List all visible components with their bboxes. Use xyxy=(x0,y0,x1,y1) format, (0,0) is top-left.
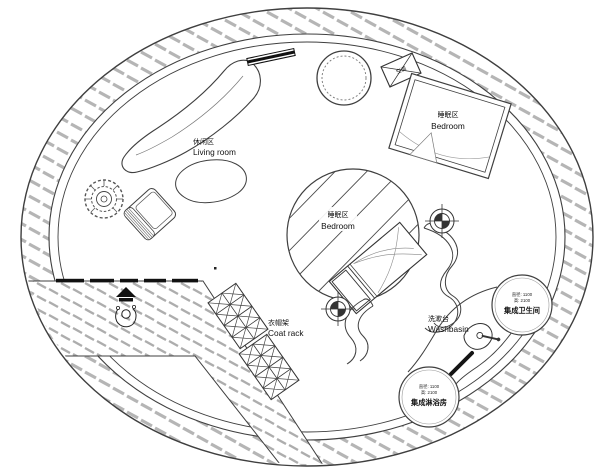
label-washbasin-en: Washbasin xyxy=(428,324,469,334)
floor-plan-svg: 空调 休闲区 Living room 睡眠区 Bedroom xyxy=(0,0,611,473)
plan-dot xyxy=(214,267,217,270)
label-bedroom1-en: Bedroom xyxy=(431,121,465,131)
bathroom-dim1: 直径: 1100 xyxy=(512,291,533,297)
bathroom-dim2: 高: 2100 xyxy=(514,297,531,304)
bathroom-pod: 直径: 1100 高: 2100 集成卫生间 xyxy=(492,275,552,335)
label-living-zh: 休闲区 xyxy=(193,137,214,146)
label-living-en: Living room xyxy=(193,147,236,157)
shower-dim2: 高: 2100 xyxy=(421,389,438,396)
floor-plan-canvas: 空调 休闲区 Living room 睡眠区 Bedroom xyxy=(0,0,611,473)
label-bedroom2-en: Bedroom xyxy=(321,221,355,231)
label-bedroom1-zh: 睡眠区 xyxy=(438,111,459,119)
shower-pod: 直径: 1100 高: 2100 集成淋浴房 xyxy=(399,367,459,427)
shower-dim1: 直径: 1100 xyxy=(419,383,440,389)
shower-name: 集成淋浴房 xyxy=(410,398,447,407)
label-bedroom2-zh: 睡眠区 xyxy=(328,211,349,219)
sliding-door-line xyxy=(56,279,198,283)
label-coatrack-en: Coat rack xyxy=(268,328,304,338)
label-coatrack-zh: 衣帽架 xyxy=(268,318,289,327)
potted-plant xyxy=(85,180,123,218)
round-table xyxy=(317,51,371,105)
bathroom-name: 集成卫生间 xyxy=(503,306,540,315)
label-washbasin-zh: 洗漱台 xyxy=(428,314,449,323)
